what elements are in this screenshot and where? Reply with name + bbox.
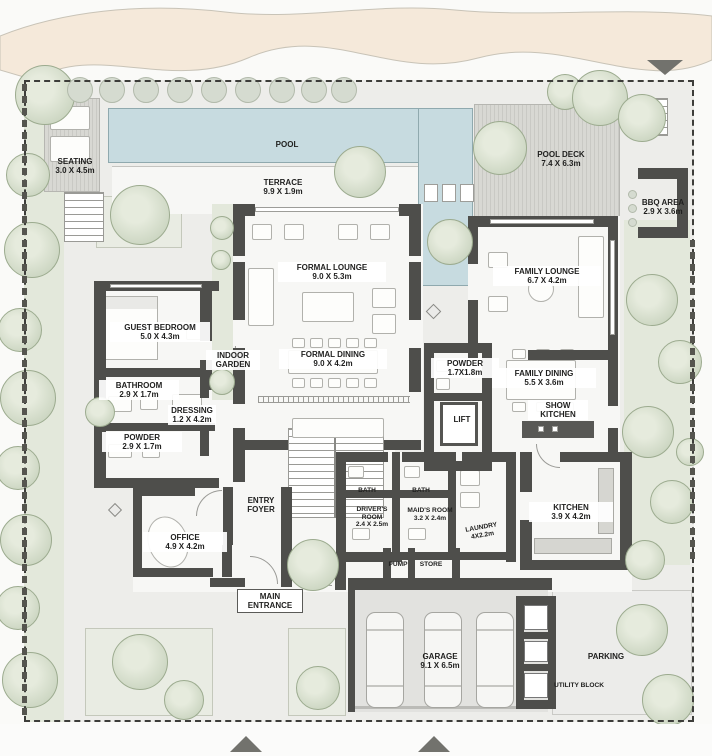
room-label-formal-dining: FORMAL DINING9.0 X 4.2m — [279, 349, 387, 369]
room-label-store: STORE — [411, 561, 451, 569]
room-label-main-entrance: MAIN ENTRANCE — [237, 589, 303, 613]
room-label-family-dining: FAMILY DINING5.5 X 3.6m — [492, 368, 596, 388]
room-label-pool-deck: POOL DECK7.4 X 6.3m — [516, 150, 606, 168]
arrow-up-icon — [418, 736, 450, 752]
room-label-seating: SEATING3.0 X 4.5m — [38, 157, 112, 175]
room-label-pool: POOL — [257, 140, 317, 149]
room-label-utility-block: UTILITY BLOCK — [542, 682, 616, 690]
room-label-terrace: TERRACE9.9 X 1.9m — [243, 178, 323, 196]
arrow-up-icon — [230, 736, 262, 752]
boundary-hedge — [22, 84, 27, 718]
room-label-maids-room: MAID'S ROOM3.2 X 2.4m — [405, 507, 455, 522]
room-label-parking: PARKING — [576, 652, 636, 661]
room-label-guest-bedroom: GUEST BEDROOM5.0 X 4.3m — [110, 322, 210, 342]
room-label-formal-lounge: FORMAL LOUNGE9.0 X 5.3m — [278, 262, 386, 282]
room-label-bath-maids: BATH — [404, 487, 438, 495]
room-label-powder-family: POWDER1.7X1.8m — [431, 358, 499, 378]
room-label-office: OFFICE4.9 X 4.2m — [143, 532, 227, 552]
page-margin — [0, 724, 712, 756]
floor-plan: SEATING3.0 X 4.5m POOL TERRACE9.9 X 1.9m… — [0, 0, 712, 756]
room-label-powder-guest: POWDER2.9 X 1.7m — [102, 432, 182, 452]
room-label-show-kitchen: SHOW KITCHEN — [528, 400, 588, 420]
room-label-family-lounge: FAMILY LOUNGE6.7 X 4.2m — [493, 266, 601, 286]
room-label-drivers-room: DRIVER'S ROOM2.4 X 2.5m — [347, 506, 397, 529]
room-label-bathroom: BATHROOM2.9 X 1.7m — [99, 380, 179, 400]
room-label-dressing: DRESSING1.2 X 4.2m — [168, 405, 216, 425]
room-label-garage: GARAGE9.1 X 6.5m — [398, 652, 482, 670]
arrow-down-icon — [647, 60, 683, 75]
room-label-bath-drivers: BATH — [350, 487, 384, 495]
room-label-entry-foyer: ENTRY FOYER — [233, 496, 289, 514]
boundary-line — [24, 80, 694, 722]
room-label-bbq-area: BBQ AREA2.9 X 3.6m — [631, 198, 695, 216]
room-label-kitchen: KITCHEN3.9 X 4.2m — [529, 502, 613, 522]
boundary-hedge — [690, 240, 695, 560]
room-label-indoor-garden: INDOOR GARDEN — [206, 350, 260, 370]
room-label-lift: LIFT — [444, 415, 480, 424]
